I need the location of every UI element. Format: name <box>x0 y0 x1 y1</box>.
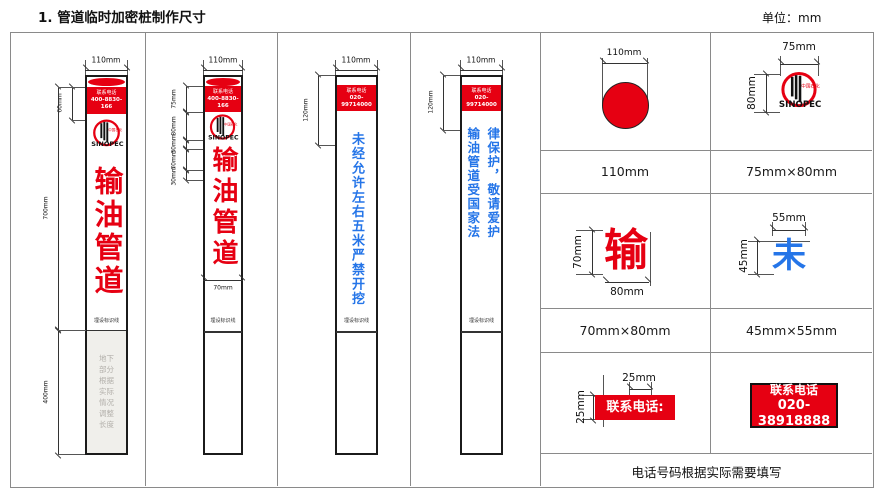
divider-col2 <box>277 32 278 486</box>
pile4-header-dim-label: 120mm <box>428 90 435 113</box>
logo-dimh-line <box>766 74 767 112</box>
pile4-col1-chars: 输油管道受国家法 <box>466 127 479 239</box>
phone-box-label: 联系电话 <box>752 382 836 398</box>
pile2-dim-80 <box>186 112 187 140</box>
pile3-header-dim-line <box>318 75 319 145</box>
pile1-width-dim-line <box>85 70 128 71</box>
pile1-below-dim-line <box>58 330 59 455</box>
pile4-phone-number: 020-99714000 <box>462 95 501 109</box>
circle-caption: 110mm <box>540 164 710 179</box>
pile4-text-col1: 输油管道受国家法 <box>463 127 481 239</box>
shu-ext-bot <box>576 274 603 275</box>
pile3-phone-header: 联系电话 020-99714000 <box>337 85 376 111</box>
pile4-phone-label: 联系电话 <box>462 88 501 95</box>
strip-dimh-line <box>593 395 594 420</box>
pile1-below-dim-label: 400mm <box>43 380 50 403</box>
shu-ext-right <box>650 232 651 286</box>
pile3-marker-text: 埋设标识线 <box>336 318 377 324</box>
pile2-dim-75 <box>186 86 187 112</box>
divider-row1-caption <box>540 193 872 194</box>
strip-dimw-label: 25mm <box>622 372 656 384</box>
pile2-ext-a <box>186 86 203 87</box>
pile4-ground-line <box>461 331 502 333</box>
pile4-ext-top <box>443 75 460 76</box>
pile3-phone-label: 联系电话 <box>337 88 376 95</box>
wei-dimw-label: 55mm <box>772 212 806 224</box>
logo-detail <box>776 70 822 116</box>
pile2-dim-75-label: 75mm <box>171 89 178 108</box>
pile2-ext-c <box>186 140 203 141</box>
pile1-underground: 地下部分根据实际情况调整长度 <box>87 330 126 453</box>
pile1-above-dim-label: 700mm <box>43 196 50 219</box>
divider-note-row <box>540 453 872 454</box>
pile3-width-dim-line <box>335 70 378 71</box>
pile1-width-dim-label: 110mm <box>92 56 121 65</box>
unit-label: 单位：mm <box>762 9 821 26</box>
pile4-col2-chars: 律保护，敬请爱护 <box>486 127 499 239</box>
divider-row2 <box>540 308 872 309</box>
pile2-main-text: 输油管道 <box>204 146 242 270</box>
pile4-width-dim-label: 110mm <box>467 56 496 65</box>
pile2-dim-30b <box>186 170 187 180</box>
pile2-dim-30b-label: 30mm <box>171 166 178 185</box>
pile1-underground-text: 地下部分根据实际情况调整长度 <box>98 353 115 453</box>
divider-col3 <box>410 32 411 486</box>
pile1-phone-header: 联系电话 400-8830-166 <box>87 87 126 114</box>
wei-dimh-label: 45mm <box>738 239 750 273</box>
pile3-ext-top <box>318 75 335 76</box>
pile1-sinopec-logo <box>89 118 124 153</box>
pile2-cap <box>206 78 240 86</box>
pile2-charwidth-dim-label: 70mm <box>213 285 232 292</box>
pile1-cap <box>88 78 125 86</box>
pile2-dim-70 <box>186 149 187 170</box>
pile1-ext-top <box>58 87 85 88</box>
wei-ext-bot <box>748 274 774 275</box>
divider-col1 <box>145 32 146 486</box>
pile3-ext-bot <box>318 145 335 146</box>
pile4-header-dim-line <box>443 75 444 130</box>
pile1-ext-60 <box>72 120 85 121</box>
shu-dimw-line <box>605 282 649 283</box>
pile2-ground-line <box>204 331 242 333</box>
circle-dim-line <box>602 63 647 64</box>
shu-dimh-label: 70mm <box>572 235 584 269</box>
shu-dimh-line <box>592 230 593 274</box>
pile4-ext-bot <box>443 130 460 131</box>
pile2-ext-d <box>186 149 203 150</box>
pile2-sinopec-logo <box>206 113 239 146</box>
pile1-phone-label: 联系电话 <box>87 90 126 97</box>
pile4-width-dim-line <box>460 70 503 71</box>
pile2-width-dim-label: 110mm <box>209 56 238 65</box>
wei-glyph: 未 <box>771 238 807 274</box>
pile1-above-dim-line <box>58 87 59 330</box>
strip-dimw-line <box>629 389 651 390</box>
spec-sheet-page: 中国石化 SINOPEC 1. 管道临时加密桩制作尺寸 单位：mm 110mm … <box>0 0 884 489</box>
pile4-phone-header: 联系电话 020-99714000 <box>462 85 501 111</box>
strip-dimh-label: 25mm <box>575 390 587 424</box>
pile1-main-chars: 输油管道 <box>92 166 121 298</box>
divider-detail-mid <box>710 32 711 453</box>
shu-dimw-label: 80mm <box>610 286 644 298</box>
pile3-header-dim-label: 120mm <box>303 98 310 121</box>
divider-row2-caption <box>540 352 872 353</box>
circle-detail <box>602 82 649 129</box>
pile1-marker-text: 埋设标识线 <box>86 318 127 324</box>
pile3-phone-number: 020-99714000 <box>337 95 376 109</box>
divider-col4 <box>540 32 541 486</box>
pile2-main-chars: 输油管道 <box>210 146 236 270</box>
wei-dimh-line <box>757 240 758 274</box>
page-title: 1. 管道临时加密桩制作尺寸 <box>38 6 206 26</box>
pile3-main-chars: 未经允许左右五米严禁开挖 <box>350 132 363 306</box>
phone-box-detail: 联系电话 020-38918888 <box>750 383 838 428</box>
logo-caption: 75mm×80mm <box>710 164 873 179</box>
pile2-dim-80-label: 80mm <box>171 116 178 135</box>
shu-glyph: 输 <box>603 228 649 274</box>
logo-dimw-line <box>780 64 818 65</box>
pile3-ground-line <box>336 331 377 333</box>
wei-dimw-line <box>772 230 806 231</box>
pile2-phone-header: 联系电话 400-8830-166 <box>205 86 241 112</box>
phone-box-number: 020-38918888 <box>752 398 836 430</box>
pile2-charwidth-dim-line <box>203 280 243 281</box>
pile3-width-dim-label: 110mm <box>342 56 371 65</box>
pile2-width-dim-line <box>203 70 243 71</box>
pile4-text-col2: 律保护，敬请爱护 <box>483 127 501 239</box>
pile2-phone-label: 联系电话 <box>205 89 241 96</box>
wei-caption: 45mm×55mm <box>710 323 873 338</box>
pile4-marker-text: 埋设标识线 <box>461 318 502 324</box>
divider-row1 <box>540 150 872 151</box>
pile1-ext-ground <box>58 330 86 331</box>
shu-ext-top <box>576 230 603 231</box>
pile2-ext-f <box>186 180 203 181</box>
pile2-phone-number: 400-8830-166 <box>205 96 241 110</box>
pile1-ext-bottom <box>58 454 85 455</box>
pile2-ext-e <box>186 170 203 171</box>
strip-detail: 联系电话: <box>595 395 675 420</box>
pile3-main-text: 未经允许左右五米严禁开挖 <box>336 132 377 306</box>
pile2-ext-b <box>186 112 203 113</box>
logo-dimw-label: 75mm <box>782 41 816 53</box>
circle-dim-label: 110mm <box>607 48 642 58</box>
pile1-header-dim-line <box>72 87 73 120</box>
shu-caption: 70mm×80mm <box>540 323 710 338</box>
footer-note: 电话号码根据实际需要填写 <box>540 462 873 481</box>
pile1-phone-number: 400-8830-166 <box>87 97 126 111</box>
logo-dimh-label: 80mm <box>746 76 758 110</box>
pile1-main-text: 输油管道 <box>86 166 127 298</box>
pile2-marker-text: 埋设标识线 <box>204 318 242 324</box>
